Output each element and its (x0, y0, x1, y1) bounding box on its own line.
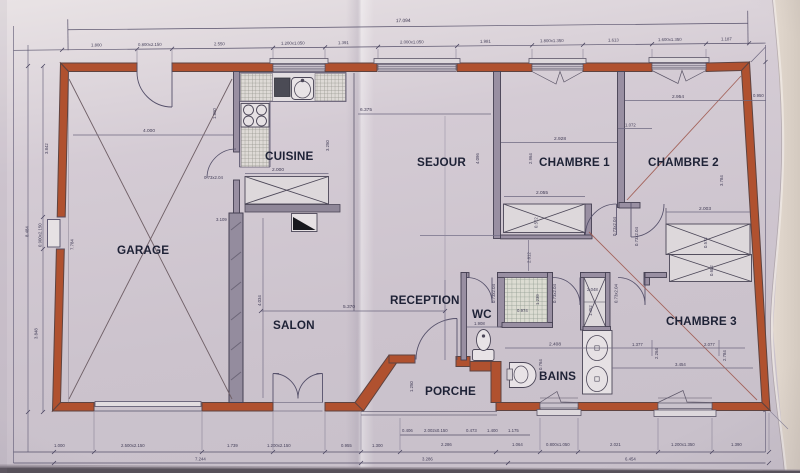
svg-text:3.250: 3.250 (325, 140, 330, 151)
svg-text:0.955: 0.955 (341, 443, 352, 448)
svg-text:2.048: 2.048 (587, 287, 598, 292)
svg-text:0.950: 0.950 (753, 93, 764, 98)
svg-text:1.739: 1.739 (227, 443, 238, 448)
svg-text:1.250: 1.250 (409, 381, 414, 392)
svg-text:1.800: 1.800 (91, 42, 102, 47)
svg-text:0.800x2.150: 0.800x2.150 (138, 42, 162, 47)
svg-text:0.73x2.04: 0.73x2.04 (614, 284, 619, 303)
svg-text:7.784: 7.784 (70, 239, 75, 250)
svg-text:1.239: 1.239 (535, 294, 540, 305)
svg-text:3.842: 3.842 (44, 143, 49, 154)
svg-text:0.73x2.04: 0.73x2.04 (491, 284, 496, 303)
svg-text:CHAMBRE 1: CHAMBRE 1 (539, 156, 610, 169)
svg-text:0.900x2.150: 0.900x2.150 (38, 223, 43, 247)
svg-text:2.408: 2.408 (549, 342, 561, 348)
svg-text:1.908: 1.908 (474, 321, 485, 326)
svg-text:2.550: 2.550 (214, 41, 225, 46)
svg-text:1.300: 1.300 (372, 443, 383, 448)
svg-text:0.974: 0.974 (517, 308, 528, 313)
svg-text:1.200x1.050: 1.200x1.050 (281, 41, 305, 46)
svg-text:17.094: 17.094 (396, 18, 411, 24)
svg-text:2.964: 2.964 (528, 153, 533, 164)
svg-text:6.375: 6.375 (360, 107, 372, 113)
svg-text:0.473: 0.473 (466, 428, 477, 433)
svg-text:1.187: 1.187 (721, 36, 732, 41)
svg-text:0.73x2.04: 0.73x2.04 (612, 217, 617, 236)
svg-text:1.000: 1.000 (54, 443, 65, 448)
svg-text:2.002x0.150: 2.002x0.150 (424, 428, 448, 433)
svg-text:RECEPTION: RECEPTION (390, 294, 460, 307)
svg-text:3.848: 3.848 (34, 328, 39, 339)
svg-text:1.200x2.150: 1.200x2.150 (267, 443, 291, 448)
svg-text:4.000: 4.000 (143, 128, 155, 134)
svg-text:4.034: 4.034 (257, 295, 262, 306)
svg-text:1.175: 1.175 (508, 428, 519, 433)
svg-text:2.954: 2.954 (672, 94, 684, 100)
svg-text:2.077: 2.077 (704, 342, 715, 347)
svg-text:1.200x1.350: 1.200x1.350 (671, 442, 695, 447)
svg-text:2.003: 2.003 (699, 206, 711, 212)
svg-text:1.390: 1.390 (731, 442, 742, 447)
svg-text:SALON: SALON (273, 319, 315, 332)
svg-text:1.452: 1.452 (588, 305, 593, 316)
svg-text:1.800x1.350: 1.800x1.350 (540, 38, 564, 43)
svg-text:1.613: 1.613 (608, 37, 619, 42)
svg-text:CHAMBRE 3: CHAMBRE 3 (666, 315, 737, 328)
svg-text:2.000x1.050: 2.000x1.050 (400, 39, 424, 44)
svg-text:WC: WC (472, 308, 492, 321)
svg-text:3.109: 3.109 (216, 217, 227, 222)
svg-text:0.800x1.050: 0.800x1.050 (546, 442, 570, 447)
svg-text:0.73x2.04: 0.73x2.04 (634, 227, 639, 246)
svg-text:1.400: 1.400 (487, 428, 498, 433)
svg-text:1.377: 1.377 (632, 342, 643, 347)
svg-text:7.244: 7.244 (195, 457, 206, 462)
svg-text:GARAGE: GARAGE (117, 244, 169, 257)
svg-text:2.812: 2.812 (527, 252, 532, 263)
svg-text:2.286: 2.286 (441, 442, 452, 447)
svg-text:2.055: 2.055 (536, 190, 548, 196)
svg-text:0.572: 0.572 (534, 217, 539, 228)
svg-text:1.072: 1.072 (625, 123, 636, 128)
svg-text:6.454: 6.454 (625, 457, 636, 462)
svg-text:2.928: 2.928 (554, 136, 566, 142)
svg-text:2.500x2.150: 2.500x2.150 (121, 443, 145, 448)
svg-text:3.286: 3.286 (422, 457, 433, 462)
svg-text:BAINS: BAINS (539, 370, 576, 383)
svg-text:1.064: 1.064 (512, 442, 523, 447)
svg-text:1.391: 1.391 (338, 40, 349, 45)
svg-text:0.73x2.04: 0.73x2.04 (552, 284, 557, 303)
svg-text:1.860: 1.860 (212, 108, 217, 119)
svg-text:0.764: 0.764 (538, 359, 543, 370)
svg-text:3.784: 3.784 (719, 175, 724, 186)
svg-text:4.096: 4.096 (475, 153, 480, 164)
svg-text:1.981: 1.981 (480, 39, 491, 44)
svg-text:CUISINE: CUISINE (265, 150, 314, 163)
svg-text:0.73x2.04: 0.73x2.04 (204, 175, 223, 180)
svg-text:0.602: 0.602 (709, 265, 714, 276)
svg-text:1.600x1.350: 1.600x1.350 (658, 37, 682, 42)
svg-text:3.454: 3.454 (675, 362, 686, 367)
svg-text:PORCHE: PORCHE (425, 385, 476, 398)
svg-text:8.484: 8.484 (25, 226, 30, 237)
svg-text:0.406: 0.406 (402, 428, 413, 433)
svg-text:2.264: 2.264 (654, 348, 659, 359)
svg-text:2.021: 2.021 (610, 442, 621, 447)
svg-text:SEJOUR: SEJOUR (417, 156, 466, 169)
svg-text:CHAMBRE 2: CHAMBRE 2 (648, 156, 719, 169)
svg-text:2.784: 2.784 (722, 350, 727, 361)
svg-text:5.370: 5.370 (343, 304, 355, 310)
svg-text:2.000: 2.000 (272, 167, 284, 173)
svg-text:0.572: 0.572 (703, 237, 708, 248)
